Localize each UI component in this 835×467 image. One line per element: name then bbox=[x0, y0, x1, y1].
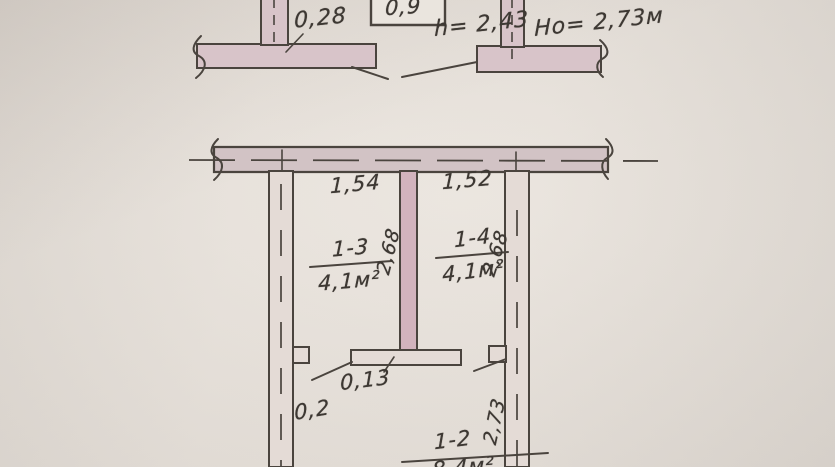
threshold-line-right bbox=[402, 62, 477, 77]
room-1-3-area: 4,1м² bbox=[318, 268, 381, 295]
dim-room-left-width: 1,54 bbox=[330, 172, 381, 198]
dim-room-right-width: 1,52 bbox=[442, 168, 493, 194]
floor-plan-photo: 0,28 0,9 h= 2,43 Но= 2,73м 1,54 1,52 1-3… bbox=[0, 0, 835, 467]
room-1-3-number: 1-3 bbox=[332, 236, 370, 260]
room-1-2-area: 8,4м² bbox=[432, 454, 495, 467]
section-wall-width-label: 0,28 bbox=[294, 5, 347, 33]
plan-view bbox=[189, 139, 658, 467]
partition-end-bar bbox=[351, 350, 461, 365]
section-door-width-label: 0,9 bbox=[385, 0, 422, 19]
room-1-2-number: 1-2 bbox=[434, 428, 471, 454]
plan-linework bbox=[0, 0, 835, 467]
door-jamb-left bbox=[293, 347, 309, 363]
plan-middle-partition bbox=[400, 171, 417, 351]
wall-thickness-label: 0,2 bbox=[294, 397, 331, 424]
section-wall-left bbox=[197, 44, 376, 68]
section-wall-right bbox=[477, 46, 601, 72]
